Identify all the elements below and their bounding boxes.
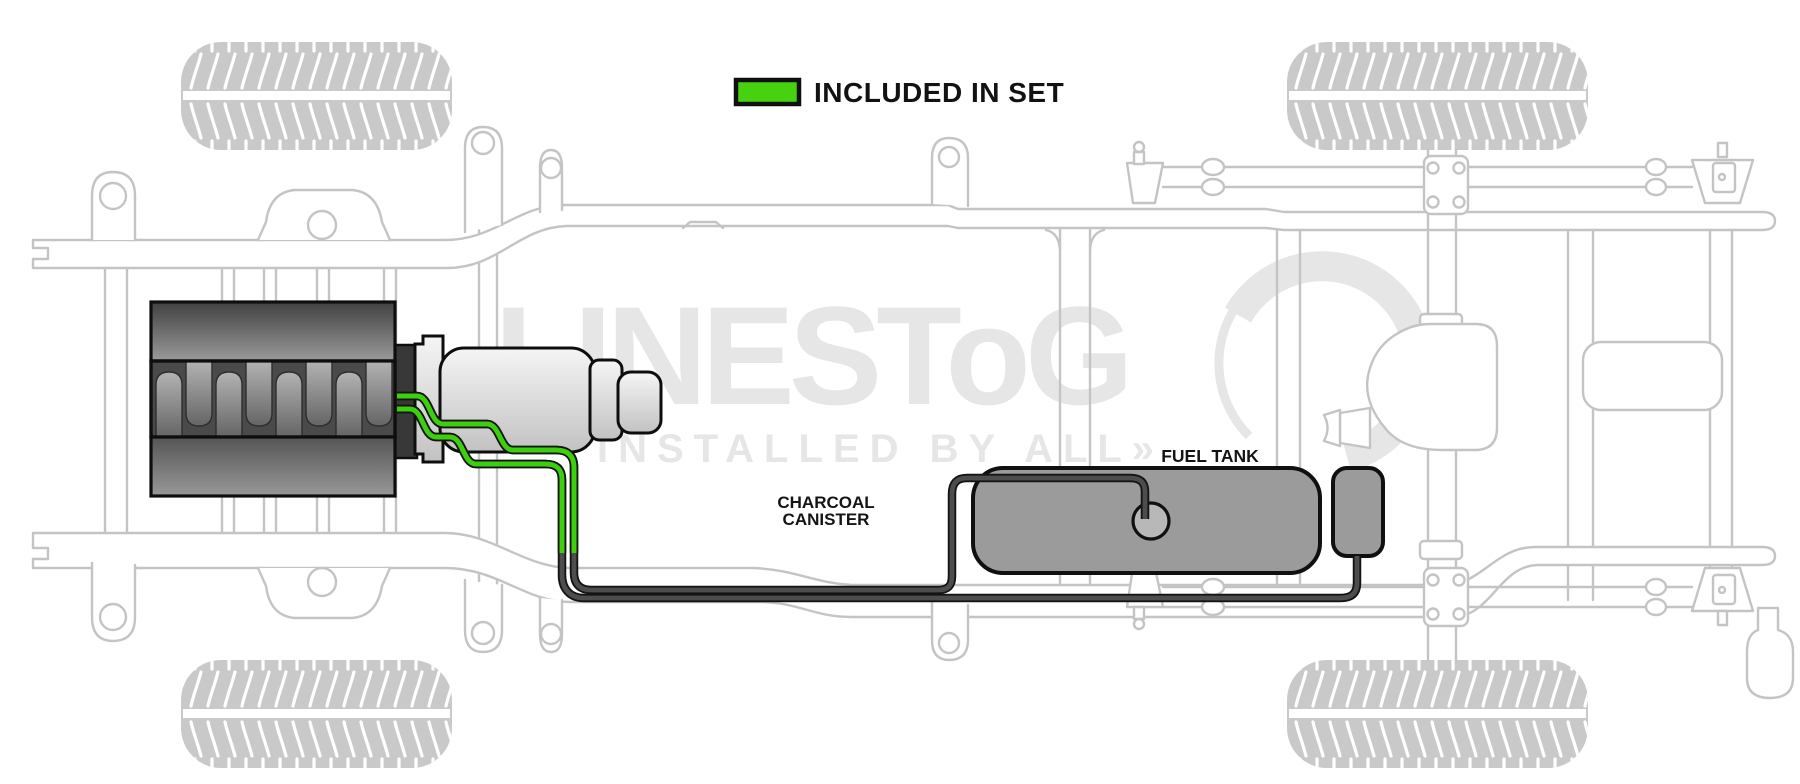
engine-block-top	[151, 302, 395, 361]
spare-carrier-box	[1583, 342, 1722, 410]
rear-reservoir	[1747, 608, 1793, 698]
label-fuel-tank: FUEL TANK	[1161, 446, 1259, 466]
leaf-spring-top	[1127, 142, 1753, 214]
watermark-tagline-text: INSTALLED BY ALL»	[597, 427, 1164, 471]
transmission-tail	[618, 372, 661, 433]
engine-block-bottom	[151, 437, 395, 496]
exhaust-manifold	[151, 361, 395, 437]
engine-adapter	[393, 345, 417, 458]
legend-swatch	[736, 80, 799, 104]
engine	[151, 302, 417, 496]
watermark: LINESToG INSTALLED BY ALL»	[494, 266, 1419, 471]
differential	[1367, 324, 1497, 450]
legend: INCLUDED IN SET	[736, 77, 1064, 108]
transmission-body	[440, 348, 595, 452]
tire-rear-right	[1287, 660, 1588, 768]
driveshaft-yoke-icon	[1340, 408, 1370, 448]
tire-rear-left	[181, 660, 452, 768]
legend-label: INCLUDED IN SET	[814, 77, 1064, 108]
fuel-sender	[1133, 503, 1169, 539]
tire-front-right	[1287, 42, 1588, 150]
label-charcoal-canister-line2: CANISTER	[783, 510, 870, 529]
charcoal-canister	[1333, 468, 1383, 556]
tire-front-left	[181, 42, 452, 150]
fuel-line-diagram: LINESToG INSTALLED BY ALL»	[0, 0, 1800, 784]
